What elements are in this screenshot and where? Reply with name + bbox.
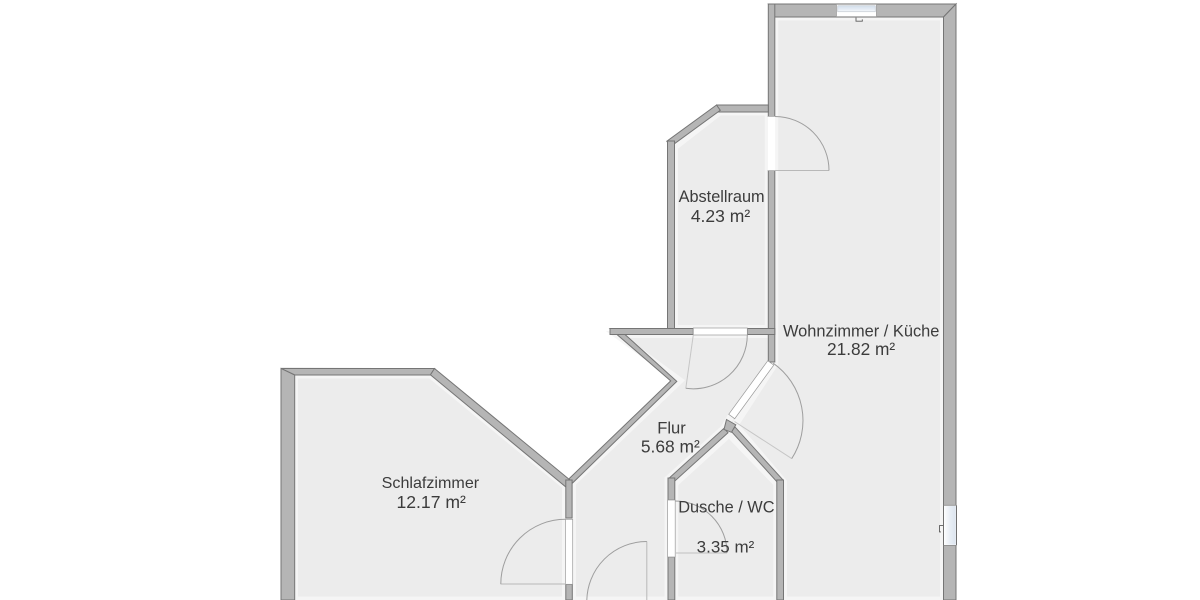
svg-text:21.82 m²: 21.82 m² xyxy=(827,339,895,359)
svg-text:Flur: Flur xyxy=(657,419,686,438)
svg-text:3.35 m²: 3.35 m² xyxy=(697,537,755,556)
svg-text:12.17 m²: 12.17 m² xyxy=(396,492,466,512)
svg-text:4.23 m²: 4.23 m² xyxy=(691,206,750,226)
svg-text:Schlafzimmer: Schlafzimmer xyxy=(382,474,480,492)
svg-text:Wohnzimmer / Küche: Wohnzimmer / Küche xyxy=(783,323,939,341)
svg-text:Dusche / WC: Dusche / WC xyxy=(678,499,774,517)
svg-text:Abstellraum: Abstellraum xyxy=(679,188,765,206)
svg-text:5.68 m²: 5.68 m² xyxy=(641,437,700,457)
